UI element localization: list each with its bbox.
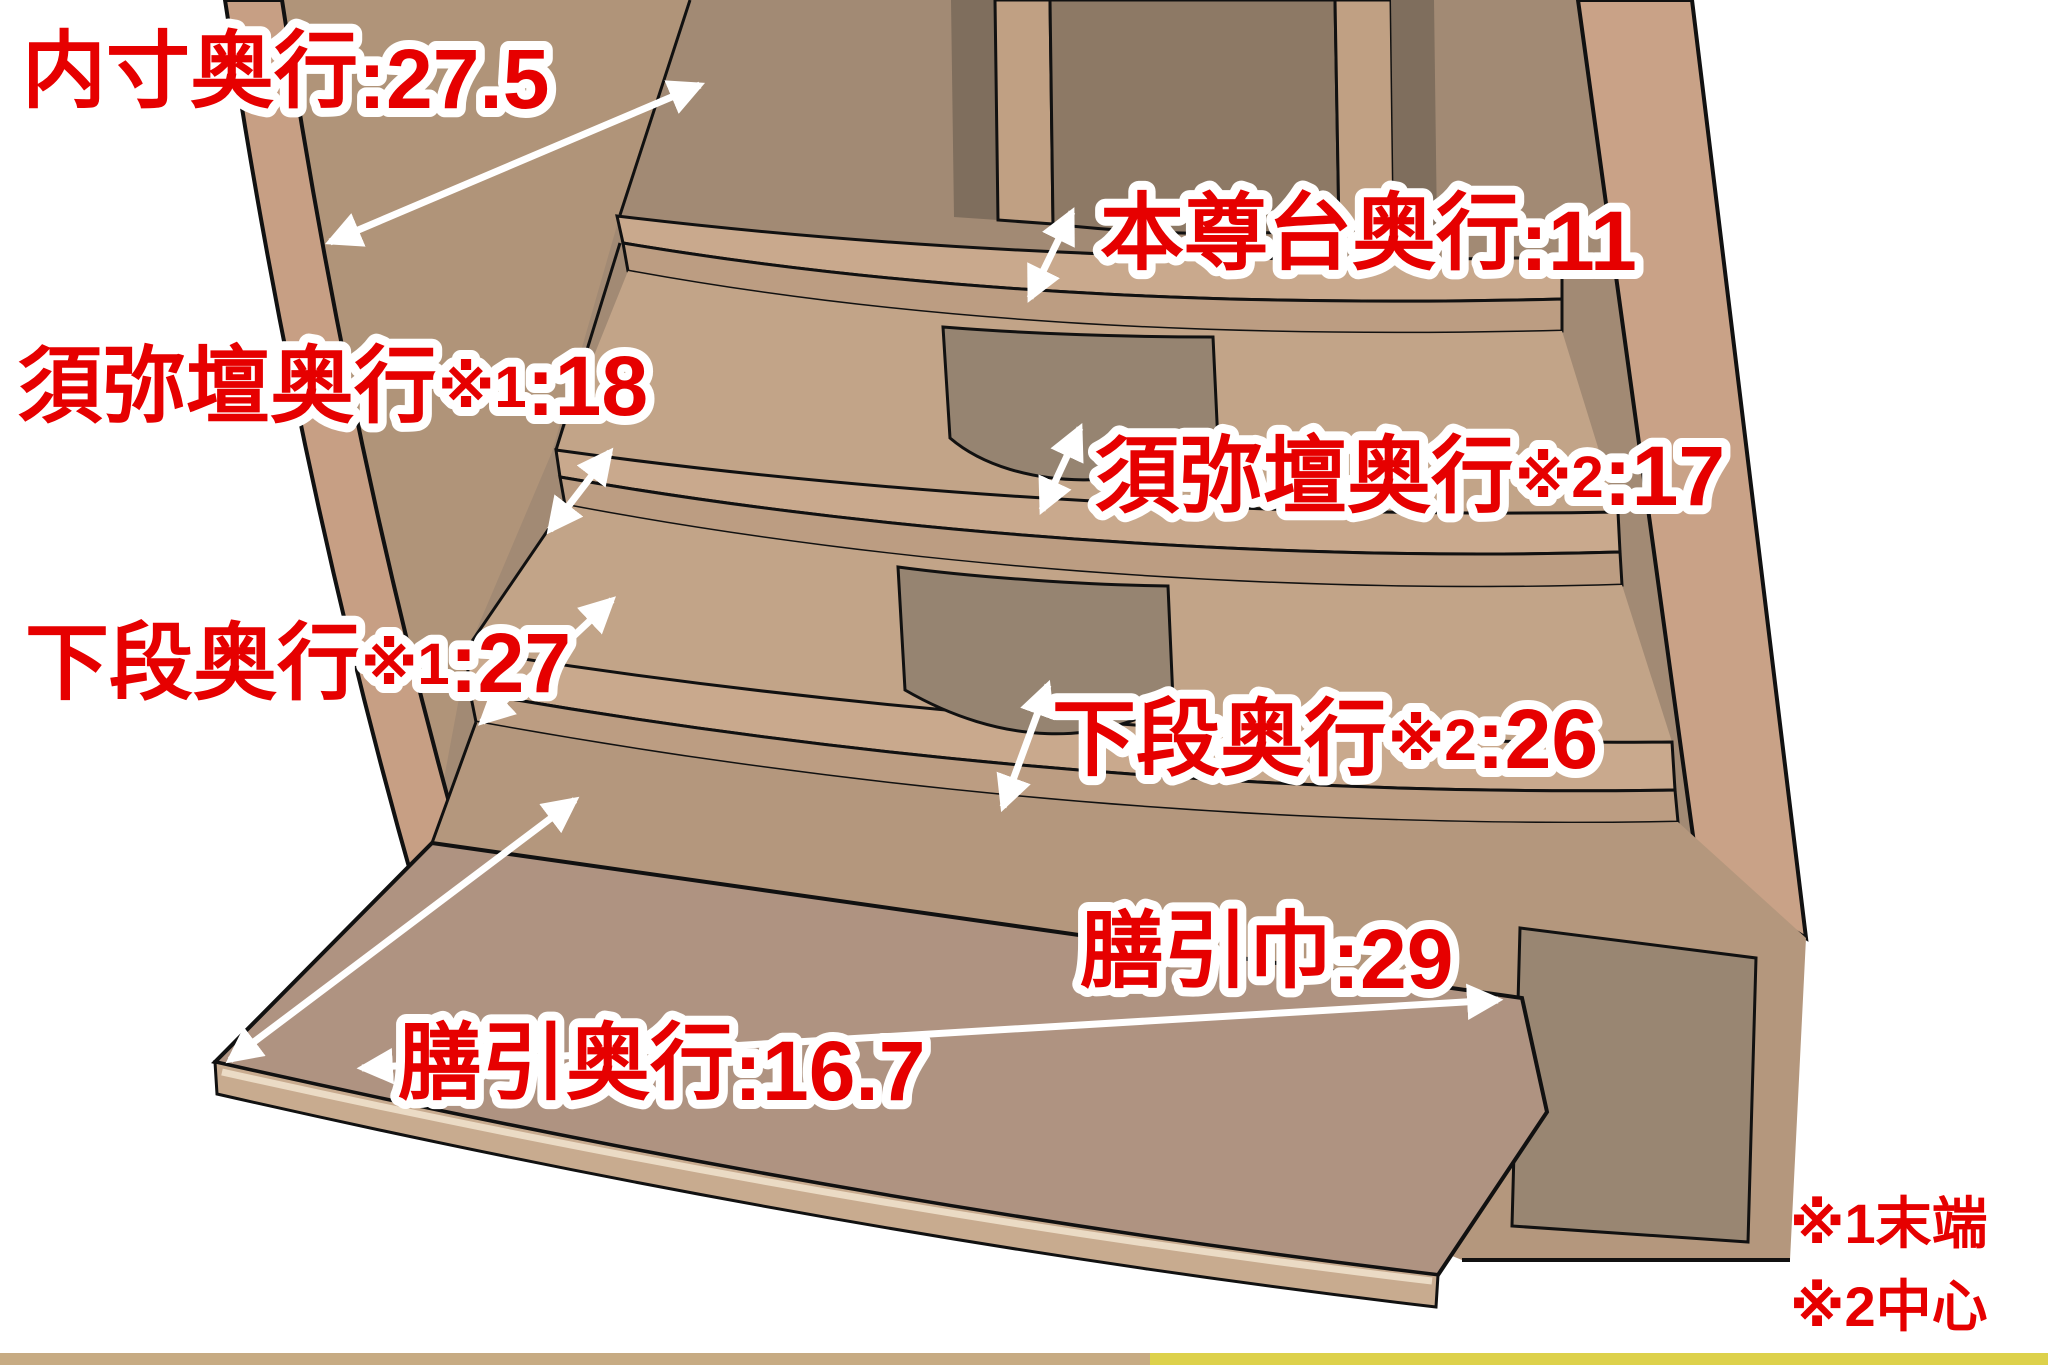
label-honzondai-okuyuki: 本尊台奥行:11: [1100, 186, 1637, 288]
bottom-strip-yellow: [1150, 1353, 2048, 1365]
label-zenbiki-okuyuki: 膳引奥行:16.7: [398, 1016, 925, 1118]
label-gedan-okuyuki-end: 下段奥行※1:27: [25, 616, 571, 710]
altar-illustration: 内寸奥行:27.5 本尊台奥行:11 須弥壇奥行※1:18 須弥壇奥行※2:17…: [0, 0, 2048, 1365]
niche-divider-left: [995, 0, 1053, 224]
label-shumidan-okuyuki-center: 須弥壇奥行※2:17: [1095, 429, 1725, 523]
label-shumidan-okuyuki-end: 須弥壇奥行※1:18: [18, 339, 648, 433]
label-gedan-okuyuki-center: 下段奥行※2:26: [1052, 692, 1598, 786]
bottom-strip: [0, 1353, 2048, 1365]
label-uchinori-okuyuki: 内寸奥行:27.5: [22, 24, 549, 126]
label-zenbiki-haba: 膳引巾:29: [1080, 904, 1453, 1006]
niche-shadow-left: [951, 0, 998, 220]
bottom-strip-tan: [0, 1353, 1150, 1365]
footnote-center: ※2中心: [1790, 1275, 1988, 1338]
footnote-end: ※1末端: [1790, 1192, 1988, 1255]
altar-dimension-diagram: 内寸奥行:27.5 本尊台奥行:11 須弥壇奥行※1:18 須弥壇奥行※2:17…: [0, 0, 2048, 1365]
lower-door-panel: [1512, 928, 1756, 1242]
